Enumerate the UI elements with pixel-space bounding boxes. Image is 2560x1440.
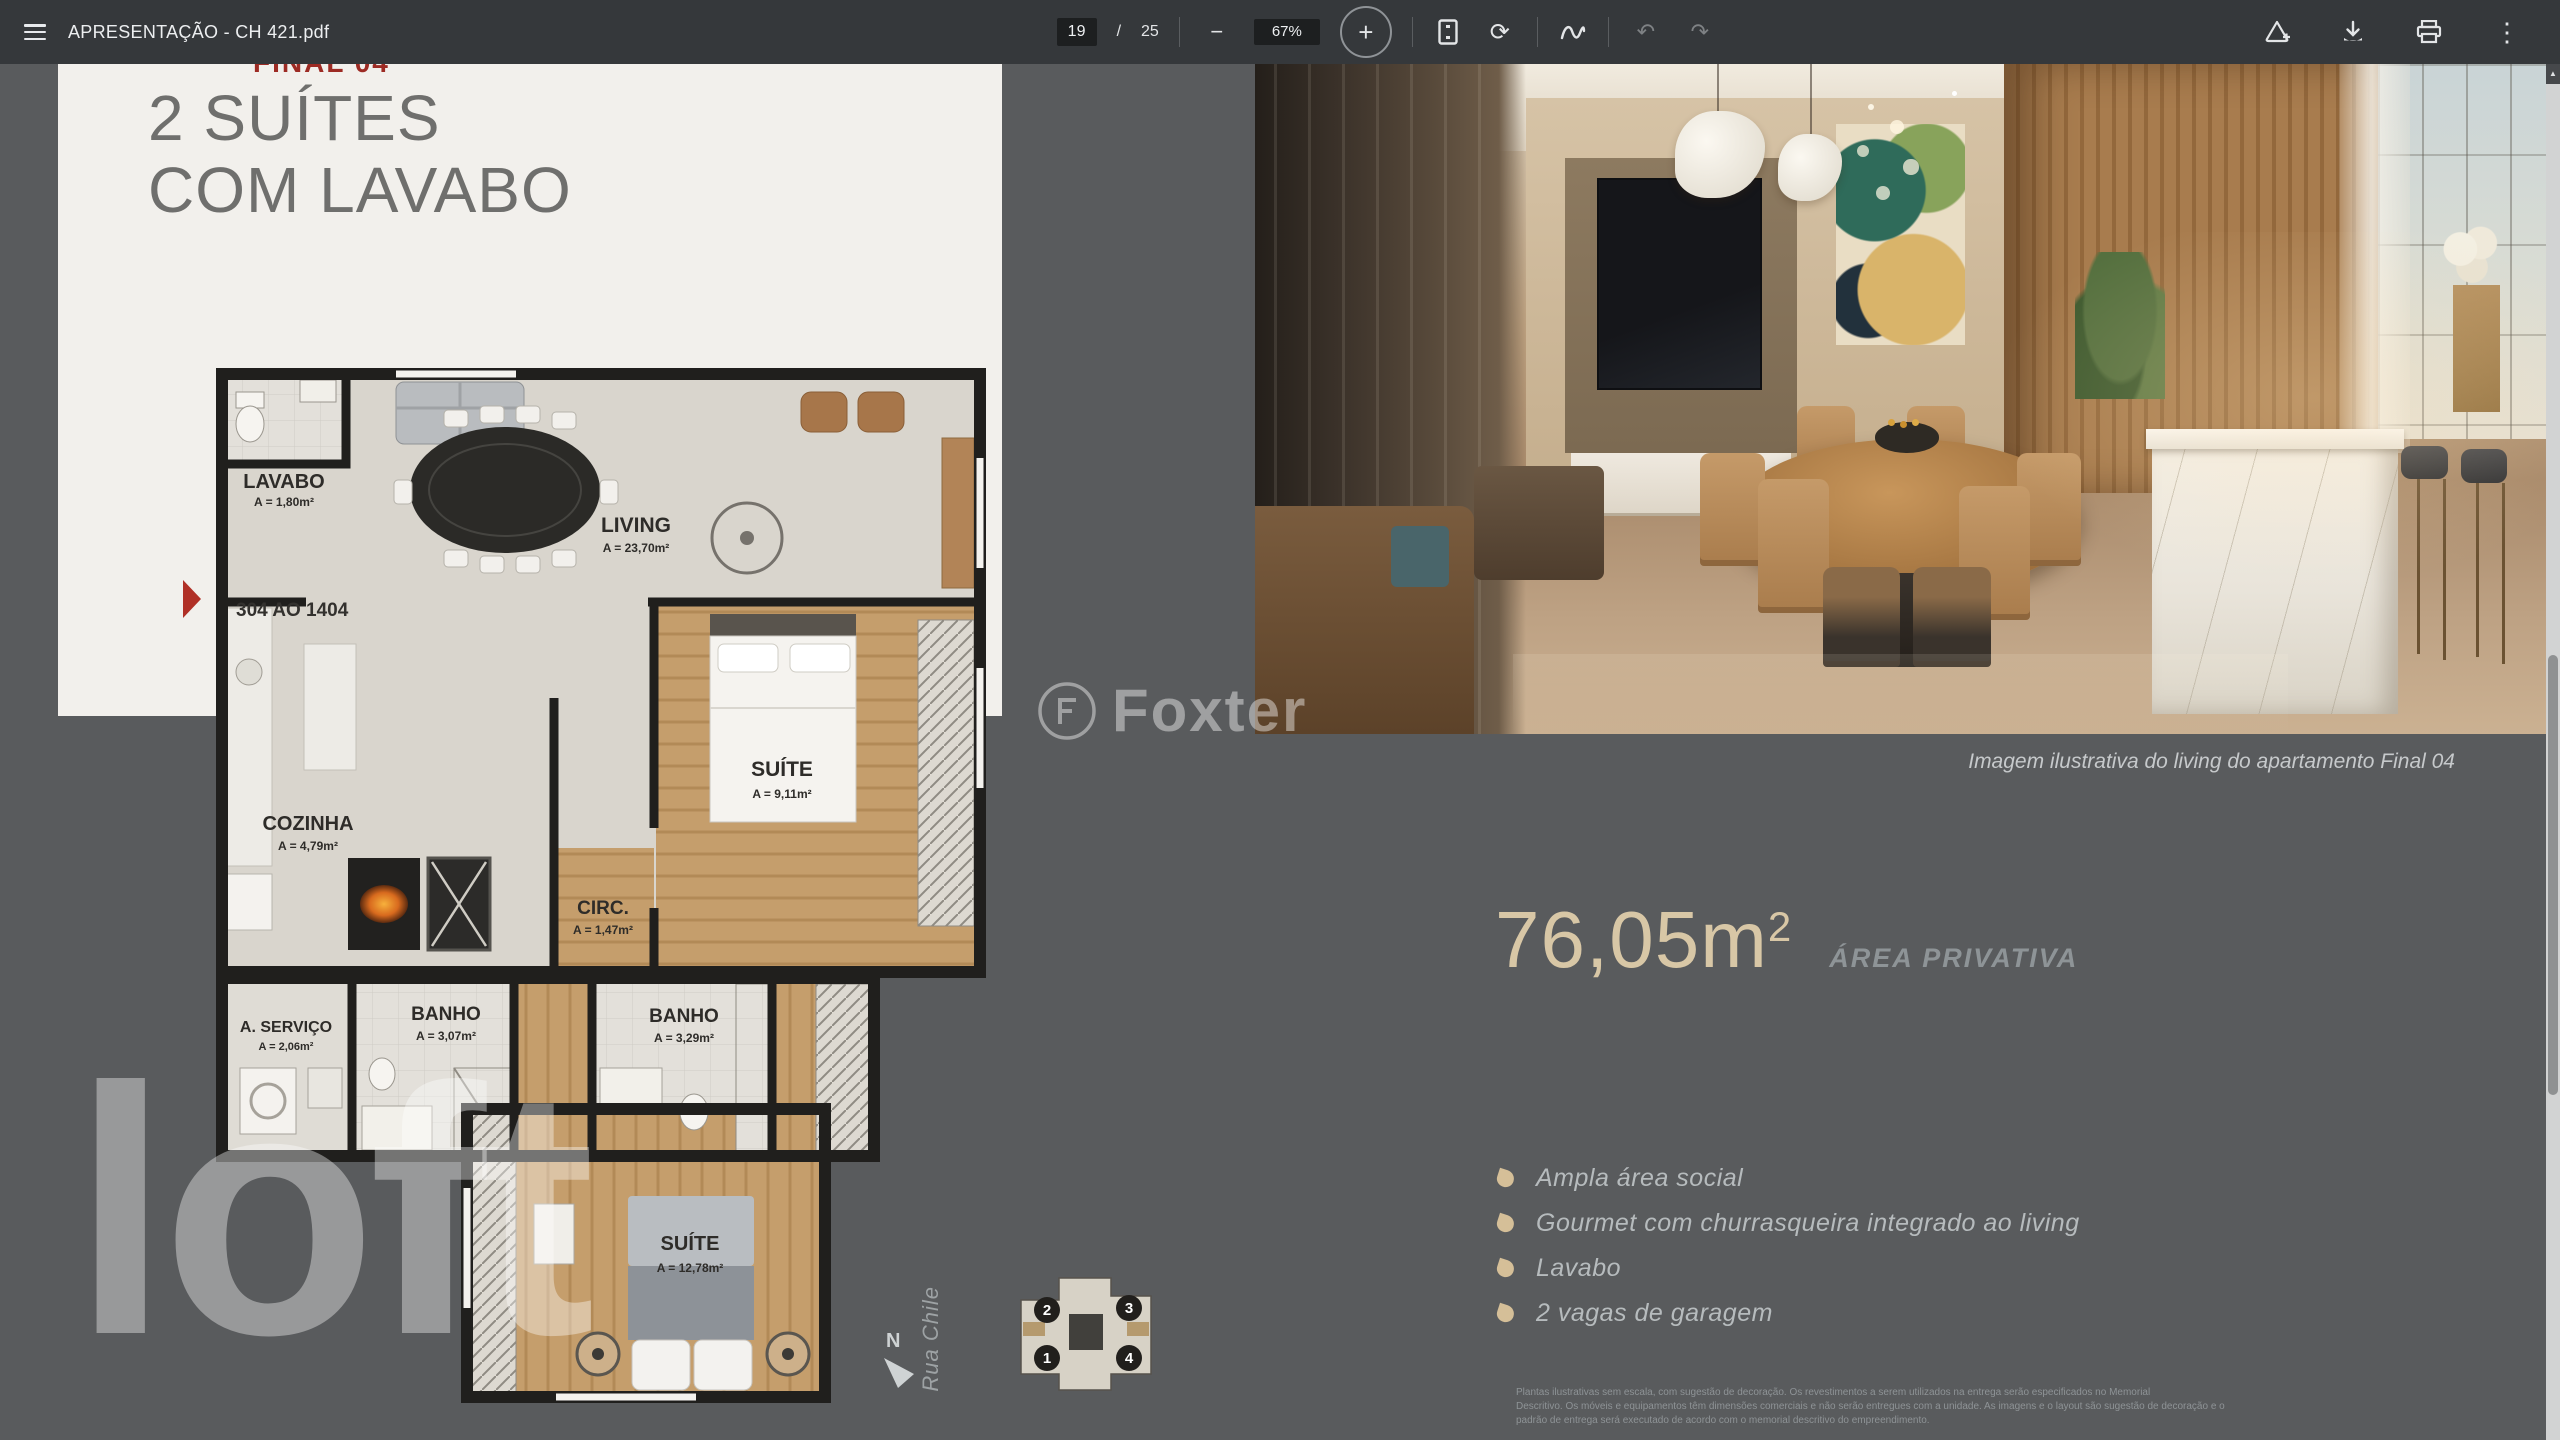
room-area: A = 12,78m² xyxy=(657,1261,724,1275)
zoom-level[interactable]: 67% xyxy=(1254,19,1320,45)
slide-title: 2 SUÍTES COM LAVABO xyxy=(148,82,572,226)
room-area: A = 3,29m² xyxy=(654,1031,714,1045)
undo-icon[interactable]: ↶ xyxy=(1629,15,1663,49)
foxter-logo-icon xyxy=(1036,680,1098,742)
photo-armchair xyxy=(1474,466,1603,580)
photo-fruit xyxy=(1888,419,1895,426)
living-room-photo xyxy=(1255,64,2546,734)
room-label: COZINHA xyxy=(262,813,353,835)
room-label: BANHO xyxy=(649,1006,719,1027)
loft-watermark: loft xyxy=(72,1044,587,1378)
photo-tv xyxy=(1597,178,1762,390)
photo-caption: Imagem ilustrativa do living do apartame… xyxy=(1968,750,2455,774)
unit-range-label: 304 AO 1404 xyxy=(236,600,349,621)
room-area: A = 4,79m² xyxy=(278,839,338,853)
leaf-bullet-icon xyxy=(1495,1168,1516,1189)
keyplan-unit: 3 xyxy=(1125,1300,1133,1317)
private-area: 76,05m2ÁREA PRIVATIVA xyxy=(1495,894,2078,986)
room-area: A = 23,70m² xyxy=(603,541,670,555)
redo-icon[interactable]: ↷ xyxy=(1683,15,1717,49)
page-number-input[interactable]: 19 xyxy=(1057,18,1097,46)
room-label: SUÍTE xyxy=(661,1232,720,1255)
room-area: A = 1,80m² xyxy=(254,495,314,509)
slide-title-line1: 2 SUÍTES xyxy=(148,82,572,154)
print-icon[interactable] xyxy=(2414,17,2444,47)
photo-cushion xyxy=(1391,526,1449,586)
zoom-in-button[interactable]: + xyxy=(1340,6,1392,58)
feature-item: 2 vagas de garagem xyxy=(1497,1291,2080,1336)
feature-item: Ampla área social xyxy=(1497,1156,2080,1201)
private-area-label: ÁREA PRIVATIVA xyxy=(1829,943,2078,973)
photo-ceiling-lights xyxy=(1952,91,1957,96)
scrollbar-up-icon[interactable]: ▲ xyxy=(2546,64,2560,84)
photo-dining-chair xyxy=(1758,479,1829,613)
keyplan-unit: 4 xyxy=(1125,1350,1134,1367)
photo-fruit-bowl xyxy=(1875,422,1940,452)
document-title: APRESENTAÇÃO - CH 421.pdf xyxy=(68,22,329,43)
room-area: A = 1,47m² xyxy=(573,923,633,937)
toolbar-divider xyxy=(1179,17,1180,47)
photo-light-glow xyxy=(1965,232,2546,601)
pdf-toolbar: APRESENTAÇÃO - CH 421.pdf 19 / 25 − 67% … xyxy=(0,0,2560,64)
compass-label: N xyxy=(886,1330,900,1353)
leaf-bullet-icon xyxy=(1495,1213,1516,1234)
pdf-page: FINAL 04 2 SUÍTES COM LAVABO xyxy=(0,64,2546,1440)
add-annotation-icon[interactable] xyxy=(2262,17,2292,47)
leaf-bullet-icon xyxy=(1495,1258,1516,1279)
feature-item: Lavabo xyxy=(1497,1246,2080,1291)
keyplan-unit: 1 xyxy=(1043,1350,1051,1367)
keyplan: 2 3 1 4 xyxy=(1003,1262,1167,1404)
photo-artwork xyxy=(1836,124,1965,345)
photo-dining-chair xyxy=(1700,453,1765,567)
disclaimer-text: Plantas ilustrativas sem escala, com sug… xyxy=(1516,1386,2346,1428)
photo-dining-chair xyxy=(1823,567,1900,668)
feature-list: Ampla área social Gourmet com churrasque… xyxy=(1497,1156,2080,1336)
toolbar-divider xyxy=(1608,17,1609,47)
draw-annotate-icon[interactable] xyxy=(1558,17,1588,47)
north-arrow-icon xyxy=(878,1352,918,1392)
page-separator: / xyxy=(1117,23,1121,41)
toolbar-divider xyxy=(1412,17,1413,47)
photo-pendant-cord xyxy=(1717,64,1719,118)
zoom-out-button[interactable]: − xyxy=(1200,15,1234,49)
unit-range-marker-icon xyxy=(183,580,201,618)
private-area-sup: 2 xyxy=(1768,903,1791,950)
keyplan-unit: 2 xyxy=(1043,1302,1051,1319)
download-icon[interactable] xyxy=(2338,17,2368,47)
foxter-watermark: Foxter xyxy=(1036,676,1307,745)
menu-icon[interactable] xyxy=(24,24,46,40)
feature-item: Gourmet com churrasqueira integrado ao l… xyxy=(1497,1201,2080,1246)
page-total: 25 xyxy=(1141,23,1159,41)
foxter-watermark-text: Foxter xyxy=(1112,676,1307,745)
fit-page-icon[interactable] xyxy=(1433,17,1463,47)
rotate-icon[interactable]: ⟳ xyxy=(1483,15,1517,49)
scrollbar-thumb[interactable] xyxy=(2548,655,2558,1095)
photo-floor-sheen xyxy=(1513,654,2288,734)
street-label: Rua Chile xyxy=(918,1286,948,1436)
more-menu-icon[interactable]: ⋮ xyxy=(2490,15,2524,49)
room-label: LIVING xyxy=(601,514,671,537)
room-label: CIRC. xyxy=(577,898,629,919)
room-label: LAVABO xyxy=(243,471,324,493)
slide-title-line2: COM LAVABO xyxy=(148,154,572,226)
room-label: SUÍTE xyxy=(751,758,813,781)
private-area-value: 76,05m xyxy=(1495,895,1768,984)
toolbar-divider xyxy=(1537,17,1538,47)
leaf-bullet-icon xyxy=(1495,1303,1516,1324)
room-area: A = 9,11m² xyxy=(752,787,811,801)
clipped-heading: FINAL 04 xyxy=(253,64,403,77)
photo-pendant-cord xyxy=(1810,64,1812,138)
